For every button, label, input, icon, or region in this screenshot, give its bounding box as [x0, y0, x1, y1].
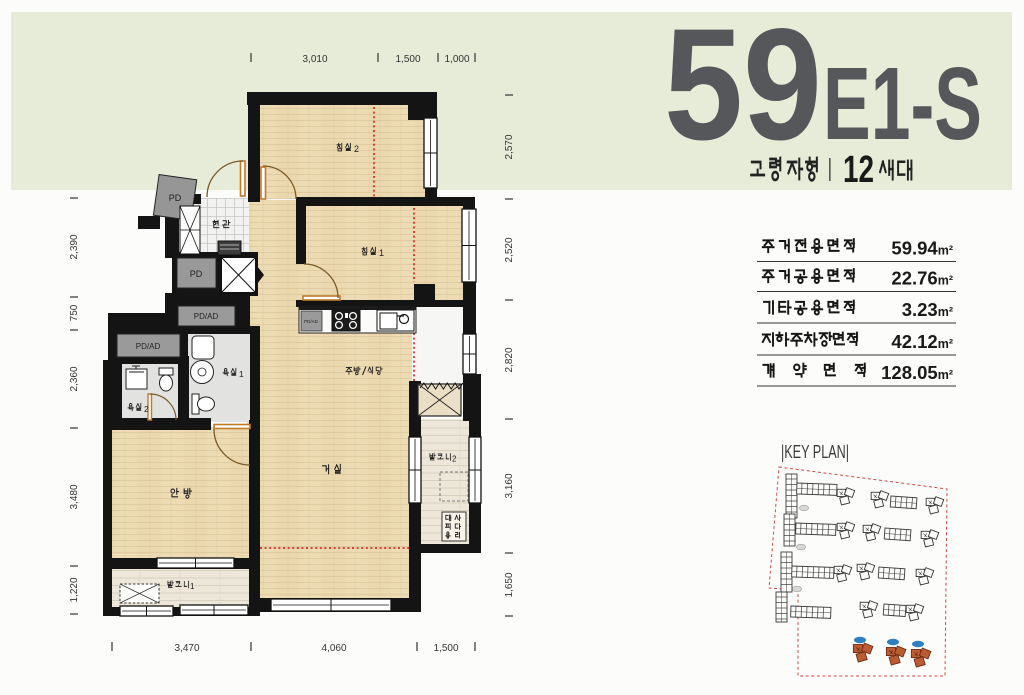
svg-text:2: 2 [452, 455, 457, 464]
svg-text:PD: PD [190, 269, 203, 279]
svg-text:1: 1 [239, 369, 244, 379]
svg-text:PD/AD: PD/AD [304, 319, 319, 324]
svg-text:2,520: 2,520 [504, 237, 515, 262]
svg-text:2,390: 2,390 [69, 234, 80, 259]
svg-text:1,500: 1,500 [395, 54, 420, 65]
svg-text:1,000: 1,000 [444, 54, 469, 65]
svg-text:2: 2 [354, 144, 359, 154]
svg-text:3,160: 3,160 [504, 473, 515, 498]
svg-text:E1-S: E1-S [823, 46, 982, 161]
svg-text:1: 1 [190, 582, 195, 591]
svg-text:PD/AD: PD/AD [136, 342, 161, 351]
svg-text:4,060: 4,060 [321, 643, 346, 654]
svg-text:12: 12 [843, 149, 874, 191]
svg-text:2,820: 2,820 [504, 347, 515, 372]
svg-text:2: 2 [144, 404, 149, 414]
svg-text:PD: PD [169, 193, 182, 203]
svg-text:1,650: 1,650 [504, 572, 515, 597]
svg-text:|KEY PLAN|: |KEY PLAN| [781, 442, 849, 462]
svg-text:PD/AD: PD/AD [194, 312, 219, 321]
svg-text:3,480: 3,480 [69, 484, 80, 509]
svg-text:1: 1 [379, 248, 384, 258]
svg-text:3,010: 3,010 [302, 54, 327, 65]
svg-text:2,360: 2,360 [69, 366, 80, 391]
svg-text:1,500: 1,500 [433, 643, 458, 654]
svg-text:59: 59 [664, 0, 822, 173]
svg-text:3,470: 3,470 [174, 643, 199, 654]
svg-text:2,570: 2,570 [504, 134, 515, 159]
svg-text:1,220: 1,220 [69, 577, 80, 602]
svg-text:750: 750 [69, 304, 80, 321]
